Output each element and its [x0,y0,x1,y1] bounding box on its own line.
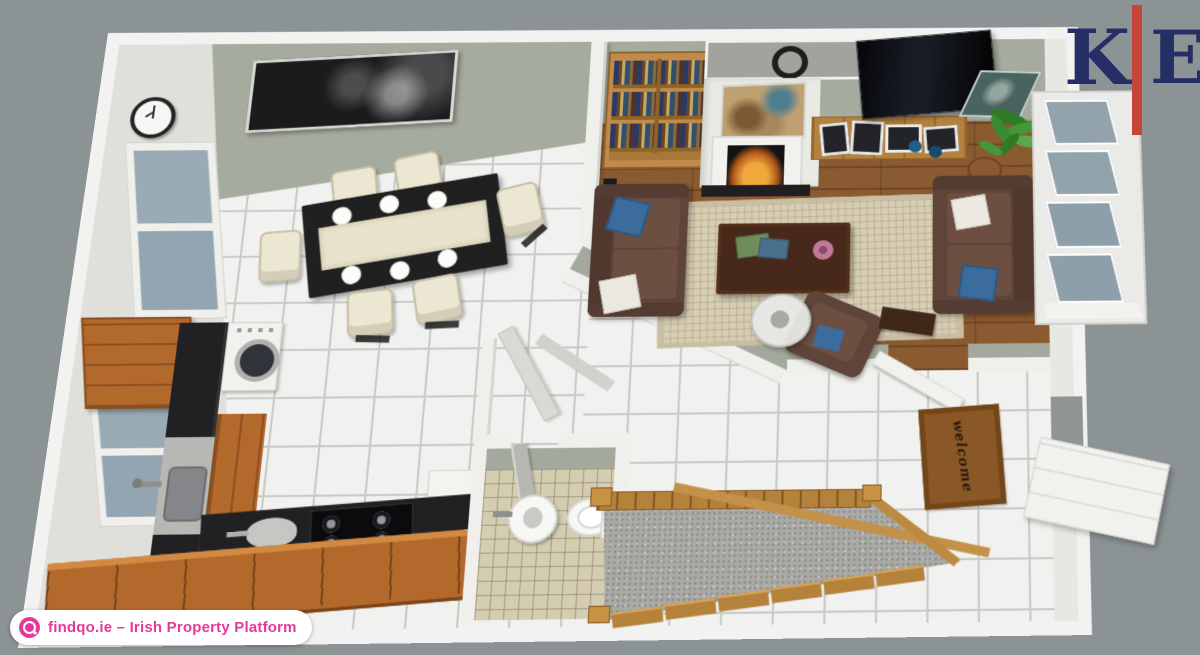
map-wall-art [720,82,807,141]
window-glass [134,150,213,223]
living-south-wall-face [968,343,1054,358]
window-sill [1043,302,1143,319]
sofa-right [933,175,1035,314]
dining-wall-art [245,50,458,134]
window-glass [1046,253,1124,303]
washer-controls [237,328,273,332]
chair-shadow [425,321,459,329]
table-stem [770,310,789,328]
bathroom-wall-face [485,447,615,469]
burner [322,515,340,533]
newel-post [862,484,882,501]
window-glass [138,231,218,310]
sink-basin [162,466,208,522]
washer-door [232,339,282,382]
bookshelf [602,51,715,169]
doormat-text: welcome [949,419,975,494]
globe-icon [19,617,40,638]
blue-pouf [929,146,942,158]
watermark-text: findqo.ie – Irish Property Platform [48,619,297,636]
living-south-wall [968,357,1054,372]
dining-chair [411,272,463,326]
doormat: welcome [918,404,1006,510]
ke-logo: K E [1062,14,1200,144]
dining-chair [258,229,302,283]
sink-bowl [522,507,543,529]
firebox [726,145,784,185]
wreath-icon [771,46,808,79]
logo-letter-k: K [1064,20,1130,96]
window-glass [1044,150,1120,196]
sofa-arm [933,299,1035,314]
hearth [701,185,810,197]
window-glass [1045,201,1122,248]
sofa-arm [933,175,1033,189]
tv-stand [811,116,968,160]
overmantel-panel [704,39,869,80]
pillow-blue [957,264,999,302]
dining-chair [347,288,394,339]
logo-red-bar [1132,5,1142,135]
burner [372,511,390,529]
photo-frame [850,120,885,155]
logo-letter-e: E [1150,22,1200,95]
house-3d-render: welcome [18,27,1092,648]
pillow-white [951,194,991,230]
coffee-table [716,223,851,295]
floor-plan-scene: welcome K E findqo.ie – Irish Property P… [0,0,1200,655]
newel-post [590,487,613,506]
chair-shadow [355,335,390,343]
dining-window [125,142,227,320]
sofa-arm [594,184,689,198]
blue-pouf [909,140,922,152]
washing-machine [220,322,283,392]
photo-frame [819,122,850,157]
findqo-watermark[interactable]: findqo.ie – Irish Property Platform [10,610,312,645]
plant-leaf [977,138,1005,158]
bath-faucet [493,512,513,518]
sofa-back [1012,175,1034,313]
newel-post [588,606,611,624]
sofa-left [587,184,689,318]
table-books [758,238,789,260]
flower-vase [813,240,834,260]
